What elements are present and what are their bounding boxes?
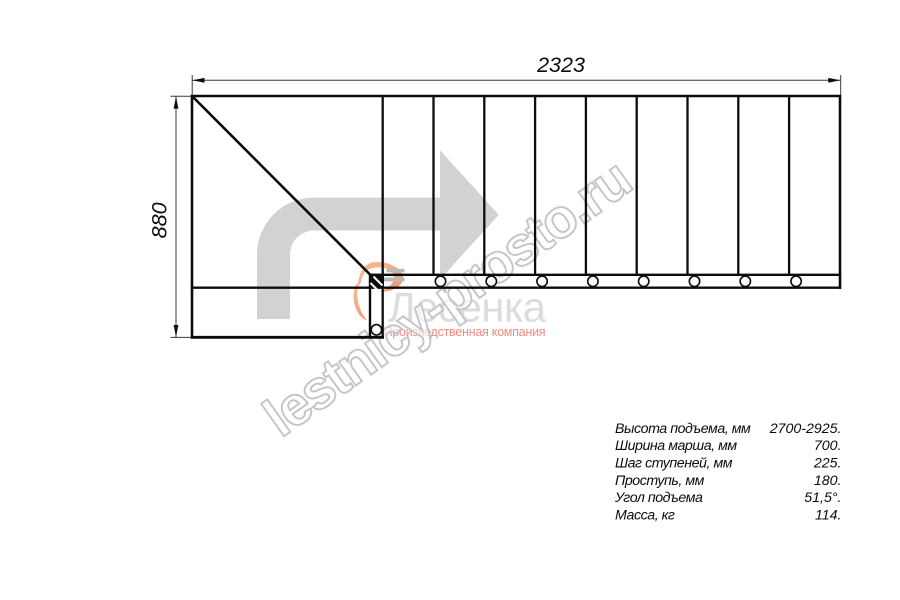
- svg-text:Высота подъема, мм: Высота подъема, мм: [615, 421, 751, 437]
- svg-text:180.: 180.: [814, 473, 842, 489]
- svg-text:2700-2925.: 2700-2925.: [769, 421, 842, 437]
- svg-text:114.: 114.: [815, 508, 842, 524]
- svg-text:2323: 2323: [536, 53, 585, 77]
- svg-text:Шаг ступеней, мм: Шаг ступеней, мм: [615, 456, 733, 472]
- svg-text:700.: 700.: [814, 438, 842, 454]
- svg-text:Угол подъема: Угол подъема: [614, 490, 703, 506]
- svg-text:Масса, кг: Масса, кг: [615, 508, 675, 524]
- svg-text:880: 880: [148, 202, 172, 238]
- svg-text:225.: 225.: [813, 456, 842, 472]
- svg-text:Ширина марша, мм: Ширина марша, мм: [615, 438, 737, 454]
- svg-text:51,5°.: 51,5°.: [804, 490, 841, 506]
- svg-text:Проступь, мм: Проступь, мм: [615, 473, 705, 489]
